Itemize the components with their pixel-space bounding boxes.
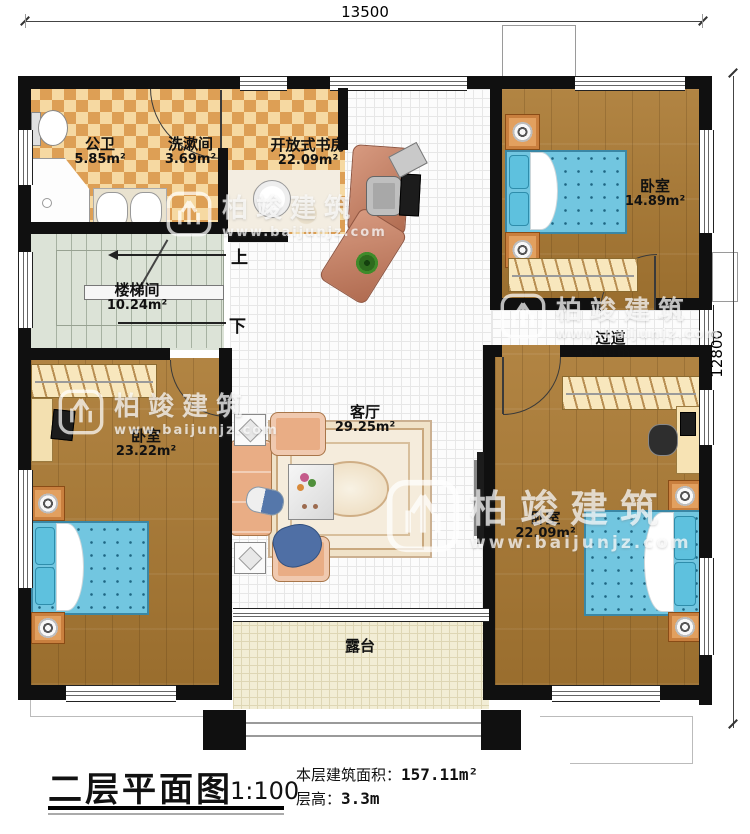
nightstand [31,612,65,644]
pillow [509,155,529,189]
pillow [35,527,55,565]
wall [699,445,712,558]
window [66,685,176,702]
room-name: 公卫 [55,136,145,153]
wardrobe [31,364,157,398]
room-label-study: 开放式书房 22.09m² [243,137,373,169]
nightstand [668,480,702,512]
window [18,470,33,588]
flower-decoration [308,479,316,487]
floor-area-row: 本层建筑面积：157.11m² [296,763,478,787]
room-name: 过道 [558,330,663,347]
room-name: 卧室 [600,178,710,195]
lower-floor-outline [30,716,203,717]
title-underline-shadow [48,813,284,815]
window [575,76,685,91]
room-label-bedroom-br: 卧室 22.09m² [488,510,603,542]
floor-height-row: 层高：3.3m [296,787,478,811]
nightstand [505,114,540,150]
wall [467,76,575,89]
room-label-bathroom: 公卫 5.85m² [55,136,145,168]
wall [228,232,288,242]
window [552,685,660,702]
table-dot [313,504,318,509]
room-area: 23.22m² [90,445,202,460]
sliding-window [233,608,489,622]
pillow [674,516,696,560]
dimension-top-label: 13500 [330,3,400,21]
window [330,76,467,91]
table-dot [302,504,307,509]
coffee-table [288,464,334,520]
floor-height-label: 层高： [296,790,341,808]
office-chair [648,424,678,456]
floor-plan-canvas: 13500 12800 上 下 [0,0,750,834]
monitor-icon [399,174,421,217]
room-area: 22.09m² [488,527,603,542]
corner-table [234,542,266,574]
office-chair [366,176,402,216]
dimension-top-line [25,21,703,22]
wall [18,222,228,234]
stair-up-arrow-line [118,254,226,256]
room-area: 22.09m² [243,154,373,169]
wall [18,348,170,360]
terrace-railing [246,722,481,724]
wall [490,298,600,310]
room-name: 卧室 [488,510,603,527]
floor-area-value: 157.11m² [401,765,478,784]
wall [18,76,240,89]
wall [656,298,712,310]
wall [489,685,552,700]
pier [203,710,246,750]
room-area: 29.25m² [310,421,420,436]
room-label-corridor: 过道 5.44m² [558,330,663,362]
title-underline [48,806,284,810]
room-name: 洗漱间 [143,136,238,153]
lower-floor-outline [692,716,693,764]
window [18,130,33,185]
room-area: 14.89m² [600,195,710,210]
room-name: 楼梯间 [82,282,192,299]
dimension-right-line [733,76,734,728]
stair-down-label: 下 [229,312,246,337]
corner-table [234,414,266,446]
wall [18,185,31,252]
drawing-info: 本层建筑面积：157.11m² 层高：3.3m [296,763,478,811]
ac-platform [712,252,738,302]
shower-drain [42,198,52,208]
lower-floor-outline [30,700,31,717]
dimension-right-label: 12800 [708,330,726,378]
wall [18,588,31,700]
window [240,76,287,91]
pillow [509,192,529,226]
washbasin-round [253,180,291,218]
terrace-railing [246,735,481,737]
tv-cabinet [31,398,53,462]
room-name: 客厅 [310,404,420,421]
room-area: 5.44m² [558,347,663,362]
room-area: 5.85m² [55,153,145,168]
lower-floor-outline [540,716,693,717]
nightstand [31,486,65,521]
lower-floor-outline [570,763,693,764]
wardrobe [508,258,638,292]
wall [219,348,232,700]
pillow [674,562,696,606]
room-label-living: 客厅 29.25m² [310,404,420,436]
wall [18,685,66,700]
monitor-icon [680,412,696,436]
window [699,558,714,655]
stair-up-label: 上 [231,243,248,268]
wall [699,76,712,130]
door-leaf [502,357,504,414]
roof-bay [502,25,576,79]
pier [481,710,521,750]
drawing-scale: 1:100 [230,777,299,805]
wardrobe [562,376,700,410]
window [18,252,33,328]
tv-stand [474,460,477,536]
room-area: 3.69m² [143,153,238,168]
stair-down-arrow-line [118,322,226,324]
plant-icon [356,252,378,274]
drawing-title: 二层平面图 [48,762,233,811]
room-label-terrace: 露台 [310,638,410,655]
room-label-washroom: 洗漱间 3.69m² [143,136,238,168]
room-label-bedroom-left: 卧室 23.22m² [90,428,202,460]
dimension-ext [702,14,703,28]
wall [660,685,712,700]
floor-area-label: 本层建筑面积： [296,766,401,784]
room-name: 露台 [310,638,410,655]
room-name: 卧室 [90,428,202,445]
nightstand [668,612,702,642]
wall [699,233,712,305]
dimension-ext [25,14,26,28]
wall [18,76,31,130]
wall [287,76,330,89]
wall [490,89,502,310]
room-label-bedroom-tr: 卧室 14.89m² [600,178,710,210]
blanket [644,512,674,612]
floor-height-value: 3.3m [341,789,380,808]
tv-icon [50,409,75,441]
room-name: 开放式书房 [243,137,373,154]
terrace-floor [233,617,489,709]
pillow [35,567,55,605]
tv-icon [477,452,484,544]
stair-arrow-icon [108,250,118,260]
room-area: 10.24m² [82,299,192,314]
flower-decoration [297,484,304,491]
room-label-stairwell: 楼梯间 10.24m² [82,282,192,314]
window [699,390,714,445]
